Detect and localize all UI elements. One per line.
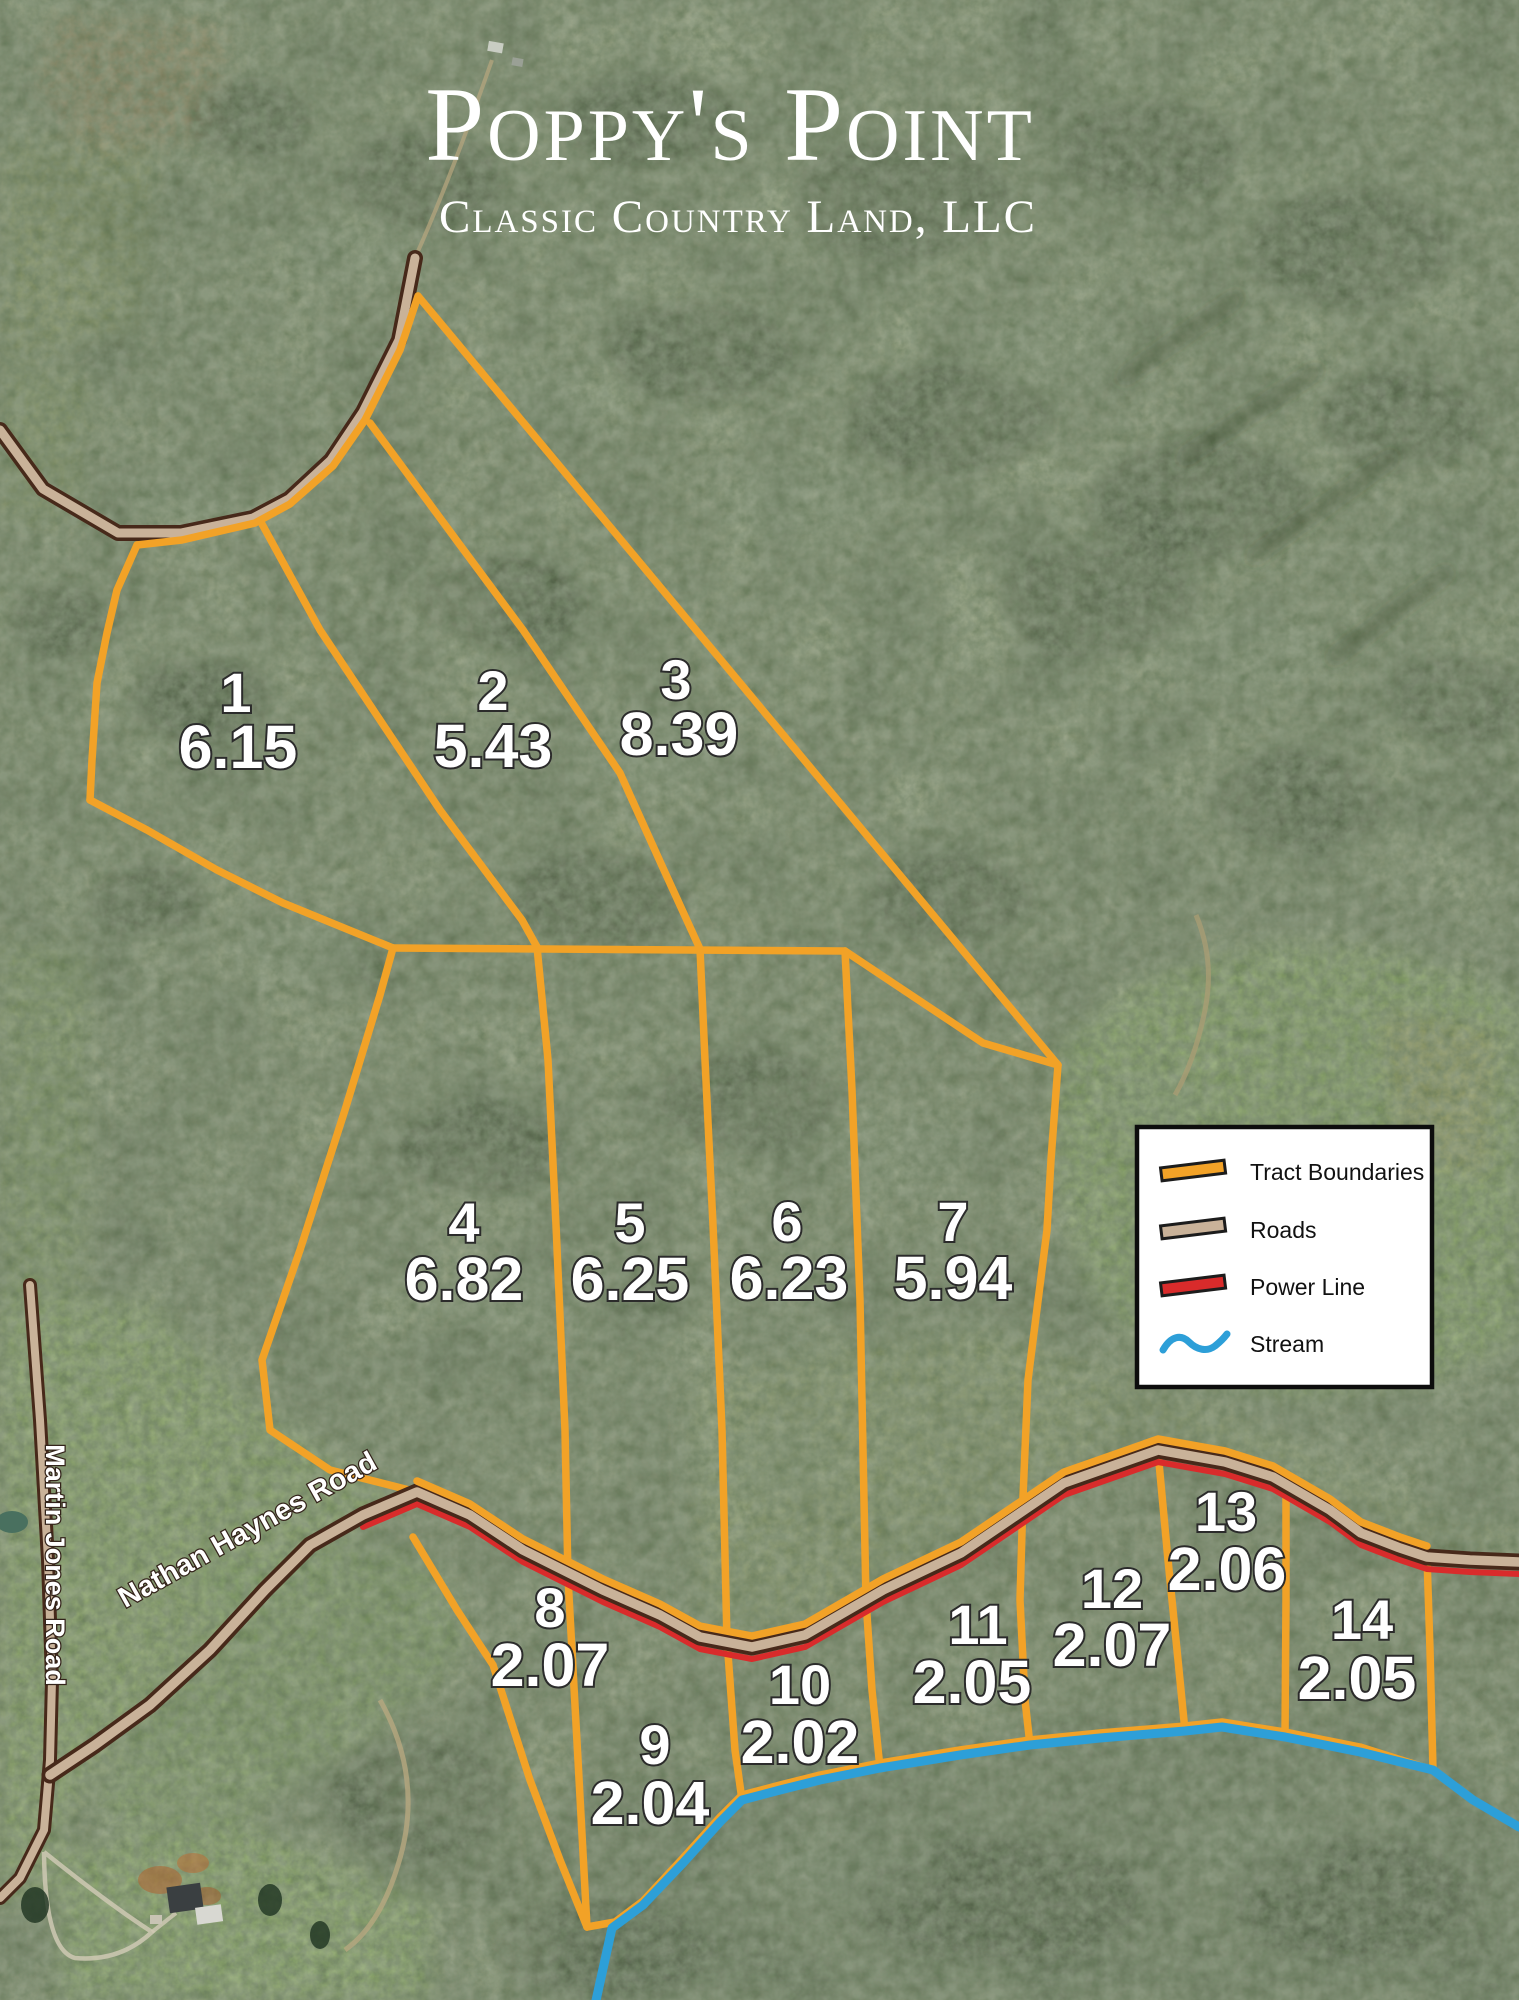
legend: Tract Boundaries Roads Power Line Stream bbox=[1137, 1127, 1432, 1387]
tract-5-acreage: 6.25 bbox=[571, 1245, 690, 1313]
legend-label-power-line: Power Line bbox=[1250, 1274, 1365, 1300]
tract-3-acreage: 8.39 bbox=[620, 700, 739, 768]
tract-boundary-line bbox=[393, 948, 845, 951]
tract-12-acreage: 2.07 bbox=[1053, 1611, 1172, 1679]
map-title: Poppy's Point bbox=[425, 66, 1035, 183]
tract-14-number: 14 bbox=[1331, 1588, 1393, 1651]
legend-label-roads: Roads bbox=[1250, 1217, 1316, 1243]
tract-6-acreage: 6.23 bbox=[730, 1244, 849, 1312]
tract-9-acreage: 2.04 bbox=[591, 1769, 710, 1837]
map-subtitle: Classic Country Land, LLC bbox=[439, 191, 1037, 243]
tract-9-number: 9 bbox=[639, 1713, 670, 1776]
martin-jones-road-label: Martin Jones Road bbox=[40, 1444, 70, 1686]
map-canvas: 16.1525.4338.3946.8256.2566.2375.9482.07… bbox=[0, 0, 1519, 2000]
tract-14-acreage: 2.05 bbox=[1298, 1644, 1417, 1712]
map-poster: 16.1525.4338.3946.8256.2566.2375.9482.07… bbox=[0, 0, 1519, 2000]
tract-13-acreage: 2.06 bbox=[1168, 1535, 1287, 1603]
tract-1-acreage: 6.15 bbox=[179, 713, 298, 781]
tract-8-number: 8 bbox=[534, 1576, 565, 1639]
tract-2-acreage: 5.43 bbox=[434, 712, 553, 780]
tract-10-number: 10 bbox=[769, 1653, 831, 1716]
tract-7-acreage: 5.94 bbox=[894, 1244, 1013, 1312]
tract-boundary-line bbox=[1285, 1478, 1286, 1737]
tract-4-acreage: 6.82 bbox=[405, 1245, 524, 1313]
tract-11-number: 11 bbox=[948, 1593, 1007, 1656]
legend-label-stream: Stream bbox=[1250, 1331, 1324, 1357]
satellite-background bbox=[0, 0, 1519, 2000]
tract-8-acreage: 2.07 bbox=[491, 1631, 610, 1699]
tract-11-acreage: 2.05 bbox=[913, 1648, 1032, 1716]
legend-label-tract-boundaries: Tract Boundaries bbox=[1250, 1159, 1424, 1185]
tract-13-number: 13 bbox=[1195, 1480, 1257, 1543]
tract-10-acreage: 2.02 bbox=[741, 1708, 860, 1776]
